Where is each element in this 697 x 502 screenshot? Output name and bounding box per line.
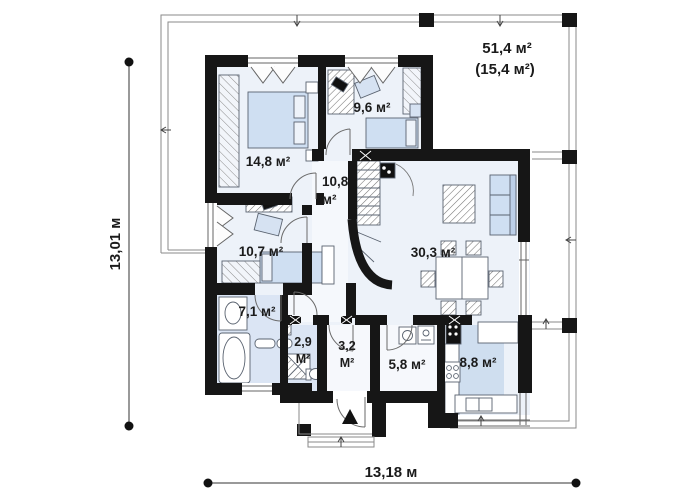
post-icon	[562, 13, 577, 27]
stove-icon	[446, 322, 461, 344]
boiler-icon	[418, 326, 434, 344]
post-icon	[562, 150, 577, 164]
post-icon	[562, 318, 577, 333]
worktop-icon	[478, 322, 518, 343]
bathtub-icon	[219, 333, 250, 383]
wardrobe-icon	[219, 75, 239, 187]
vent-icon	[341, 316, 352, 324]
hall-area-unit: м²	[322, 192, 337, 207]
dimension-left: 13,01 м	[107, 58, 134, 431]
window-icon	[242, 383, 272, 395]
hob-icon	[444, 362, 460, 382]
desk-icon	[328, 70, 354, 114]
bedroom3-area-label: 10,7 м²	[239, 244, 284, 259]
washing-machine-icon	[399, 327, 416, 344]
rug-icon	[443, 185, 475, 223]
kitchen-sink-icon	[455, 395, 517, 413]
arrow-icon	[566, 237, 576, 243]
arrow-icon	[161, 127, 171, 133]
arrow-icon	[543, 319, 549, 329]
wc-area-unit: М²	[296, 352, 311, 366]
sofa-icon	[490, 175, 516, 235]
bedroom2-area-label: 9,6 м²	[354, 100, 392, 115]
wc-area-value: 2,9	[294, 335, 311, 349]
kitchen-area-label: 8,8 м²	[460, 355, 498, 370]
bathroom-area-label: 7,1 м²	[239, 304, 277, 319]
wardrobe-icon	[222, 261, 260, 283]
floor-plan-canvas: 13,01 м 13,18 м 51,4 м² (15,4 м²) 14,8 м…	[0, 0, 697, 502]
living-room-area-label: 30,3 м²	[411, 245, 456, 260]
window-icon	[519, 242, 529, 315]
dimension-bottom: 13,18 м	[204, 464, 581, 488]
terrace-area-secondary-label: (15,4 м²)	[475, 61, 534, 78]
hall-area-value: 10,8	[322, 174, 349, 189]
width-dimension-label: 13,18 м	[365, 464, 418, 481]
arrow-icon	[497, 15, 503, 26]
vent-icon	[290, 316, 301, 324]
post-icon	[419, 13, 434, 27]
height-dimension-label: 13,01 м	[107, 218, 124, 271]
vestibule-area-unit: М²	[340, 356, 355, 370]
entrance-arrow-icon	[342, 409, 358, 424]
floor-plan: 13,01 м 13,18 м 51,4 м² (15,4 м²) 14,8 м…	[0, 0, 697, 502]
vent-icon	[449, 316, 460, 324]
utility-area-label: 5,8 м²	[389, 357, 427, 372]
arrow-icon	[294, 15, 300, 26]
terrace-area-label: 51,4 м²	[482, 40, 531, 57]
vent-icon	[360, 151, 371, 160]
vestibule-area-value: 3,2	[338, 339, 355, 353]
bedroom1-area-label: 14,8 м²	[246, 154, 291, 169]
